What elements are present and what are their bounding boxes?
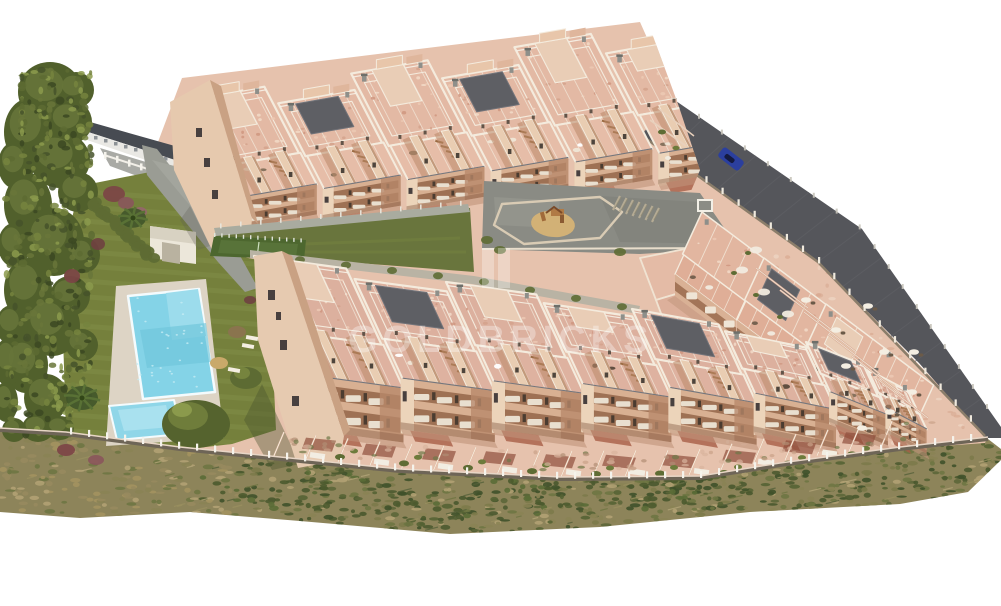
svg-text:GOLDBRICKS: GOLDBRICKS	[348, 319, 653, 361]
